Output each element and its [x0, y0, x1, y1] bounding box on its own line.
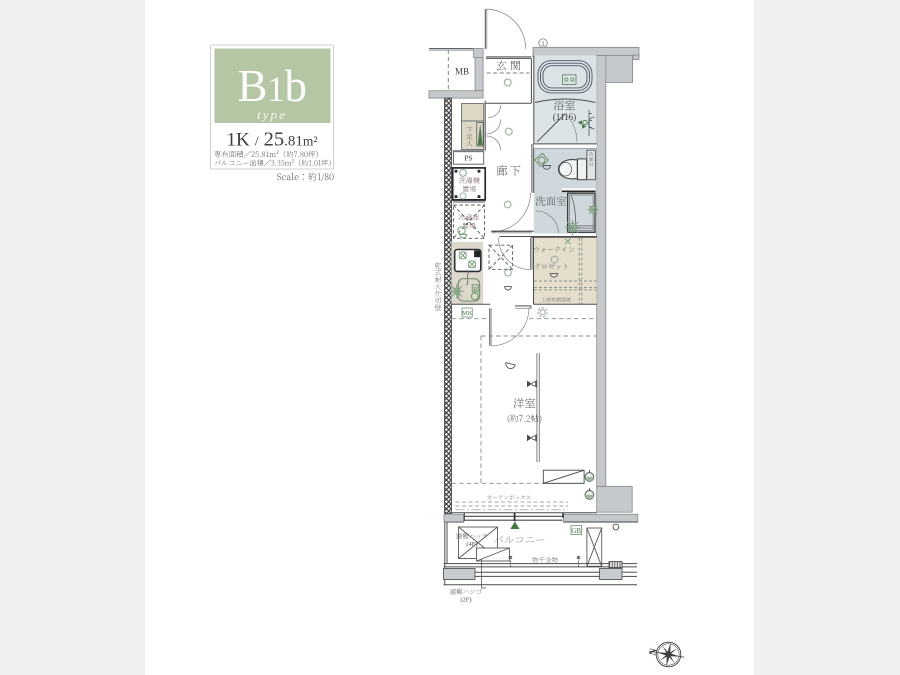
svg-text:(4F): (4F) [466, 541, 477, 548]
svg-text:GB: GB [571, 527, 581, 535]
svg-text:MK: MK [462, 310, 473, 317]
svg-text:1: 1 [541, 40, 545, 48]
svg-text:B1b: B1b [237, 61, 306, 111]
svg-text:PS: PS [464, 154, 472, 163]
svg-text:(2F): (2F) [460, 597, 471, 604]
svg-text:R: R [473, 287, 477, 293]
svg-text:type: type [257, 107, 287, 122]
svg-text:MB: MB [455, 67, 469, 77]
svg-text:(1116): (1116) [553, 112, 576, 122]
